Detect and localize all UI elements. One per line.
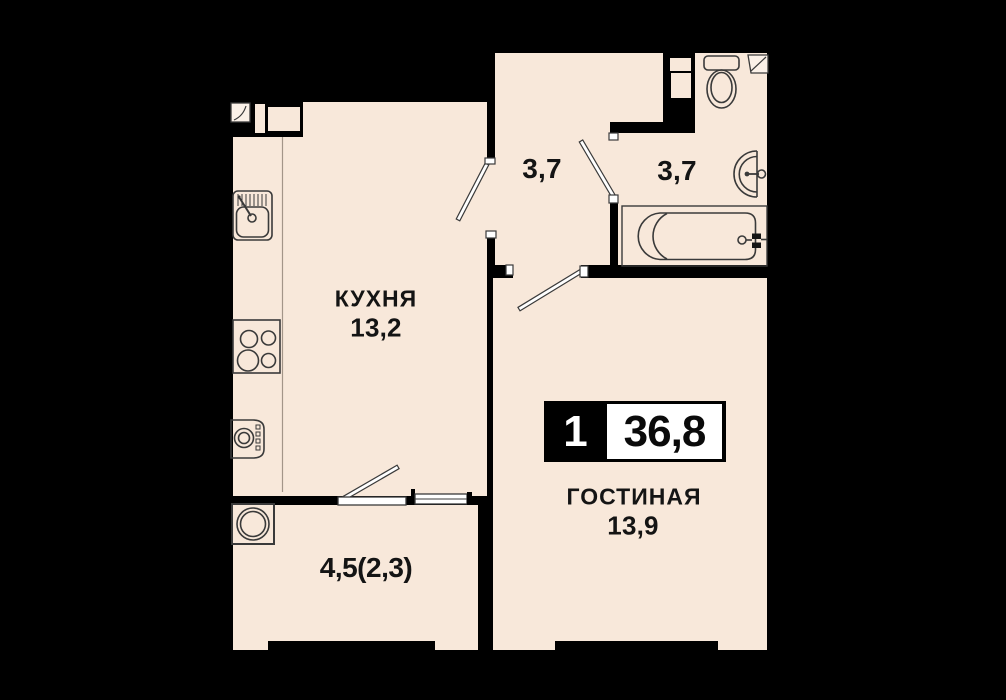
room-count-badge: 1 [544,401,607,462]
vent-shaft-icon [231,103,300,133]
hallway-area: 3,7 [522,153,562,185]
kitchen-area: 13,2 [350,313,401,344]
floor-plan: КУХНЯ 13,2 3,7 3,7 ГОСТИНАЯ 13,9 4,5(2,3… [0,0,1006,700]
hallway-floor-lower [495,122,610,265]
living-south-wall-step [555,641,718,650]
kitchen-door-opening [487,164,495,232]
kitchen-label: КУХНЯ [335,286,417,313]
total-area-badge: 36,8 [607,404,722,459]
bath-door-opening [610,140,618,196]
living-room-area: 13,9 [607,511,658,542]
living-room-label: ГОСТИНАЯ [567,484,702,511]
balcony-area: 4,5(2,3) [320,552,413,584]
bathroom-area: 3,7 [657,155,697,187]
balcony-south-wall-step [268,641,435,650]
bathroom-floor-upper [695,53,767,133]
hallway-floor [495,53,663,122]
total-area-value: 36,8 [624,407,706,457]
living-room-floor [493,278,767,650]
apartment-badge: 1 36,8 [544,401,726,462]
bathroom-floor [618,133,767,265]
living-door-opening [513,265,581,278]
vent-shaft-icon [670,58,691,98]
balcony-door-panel [338,497,406,505]
kitchen-floor-left [233,137,303,496]
